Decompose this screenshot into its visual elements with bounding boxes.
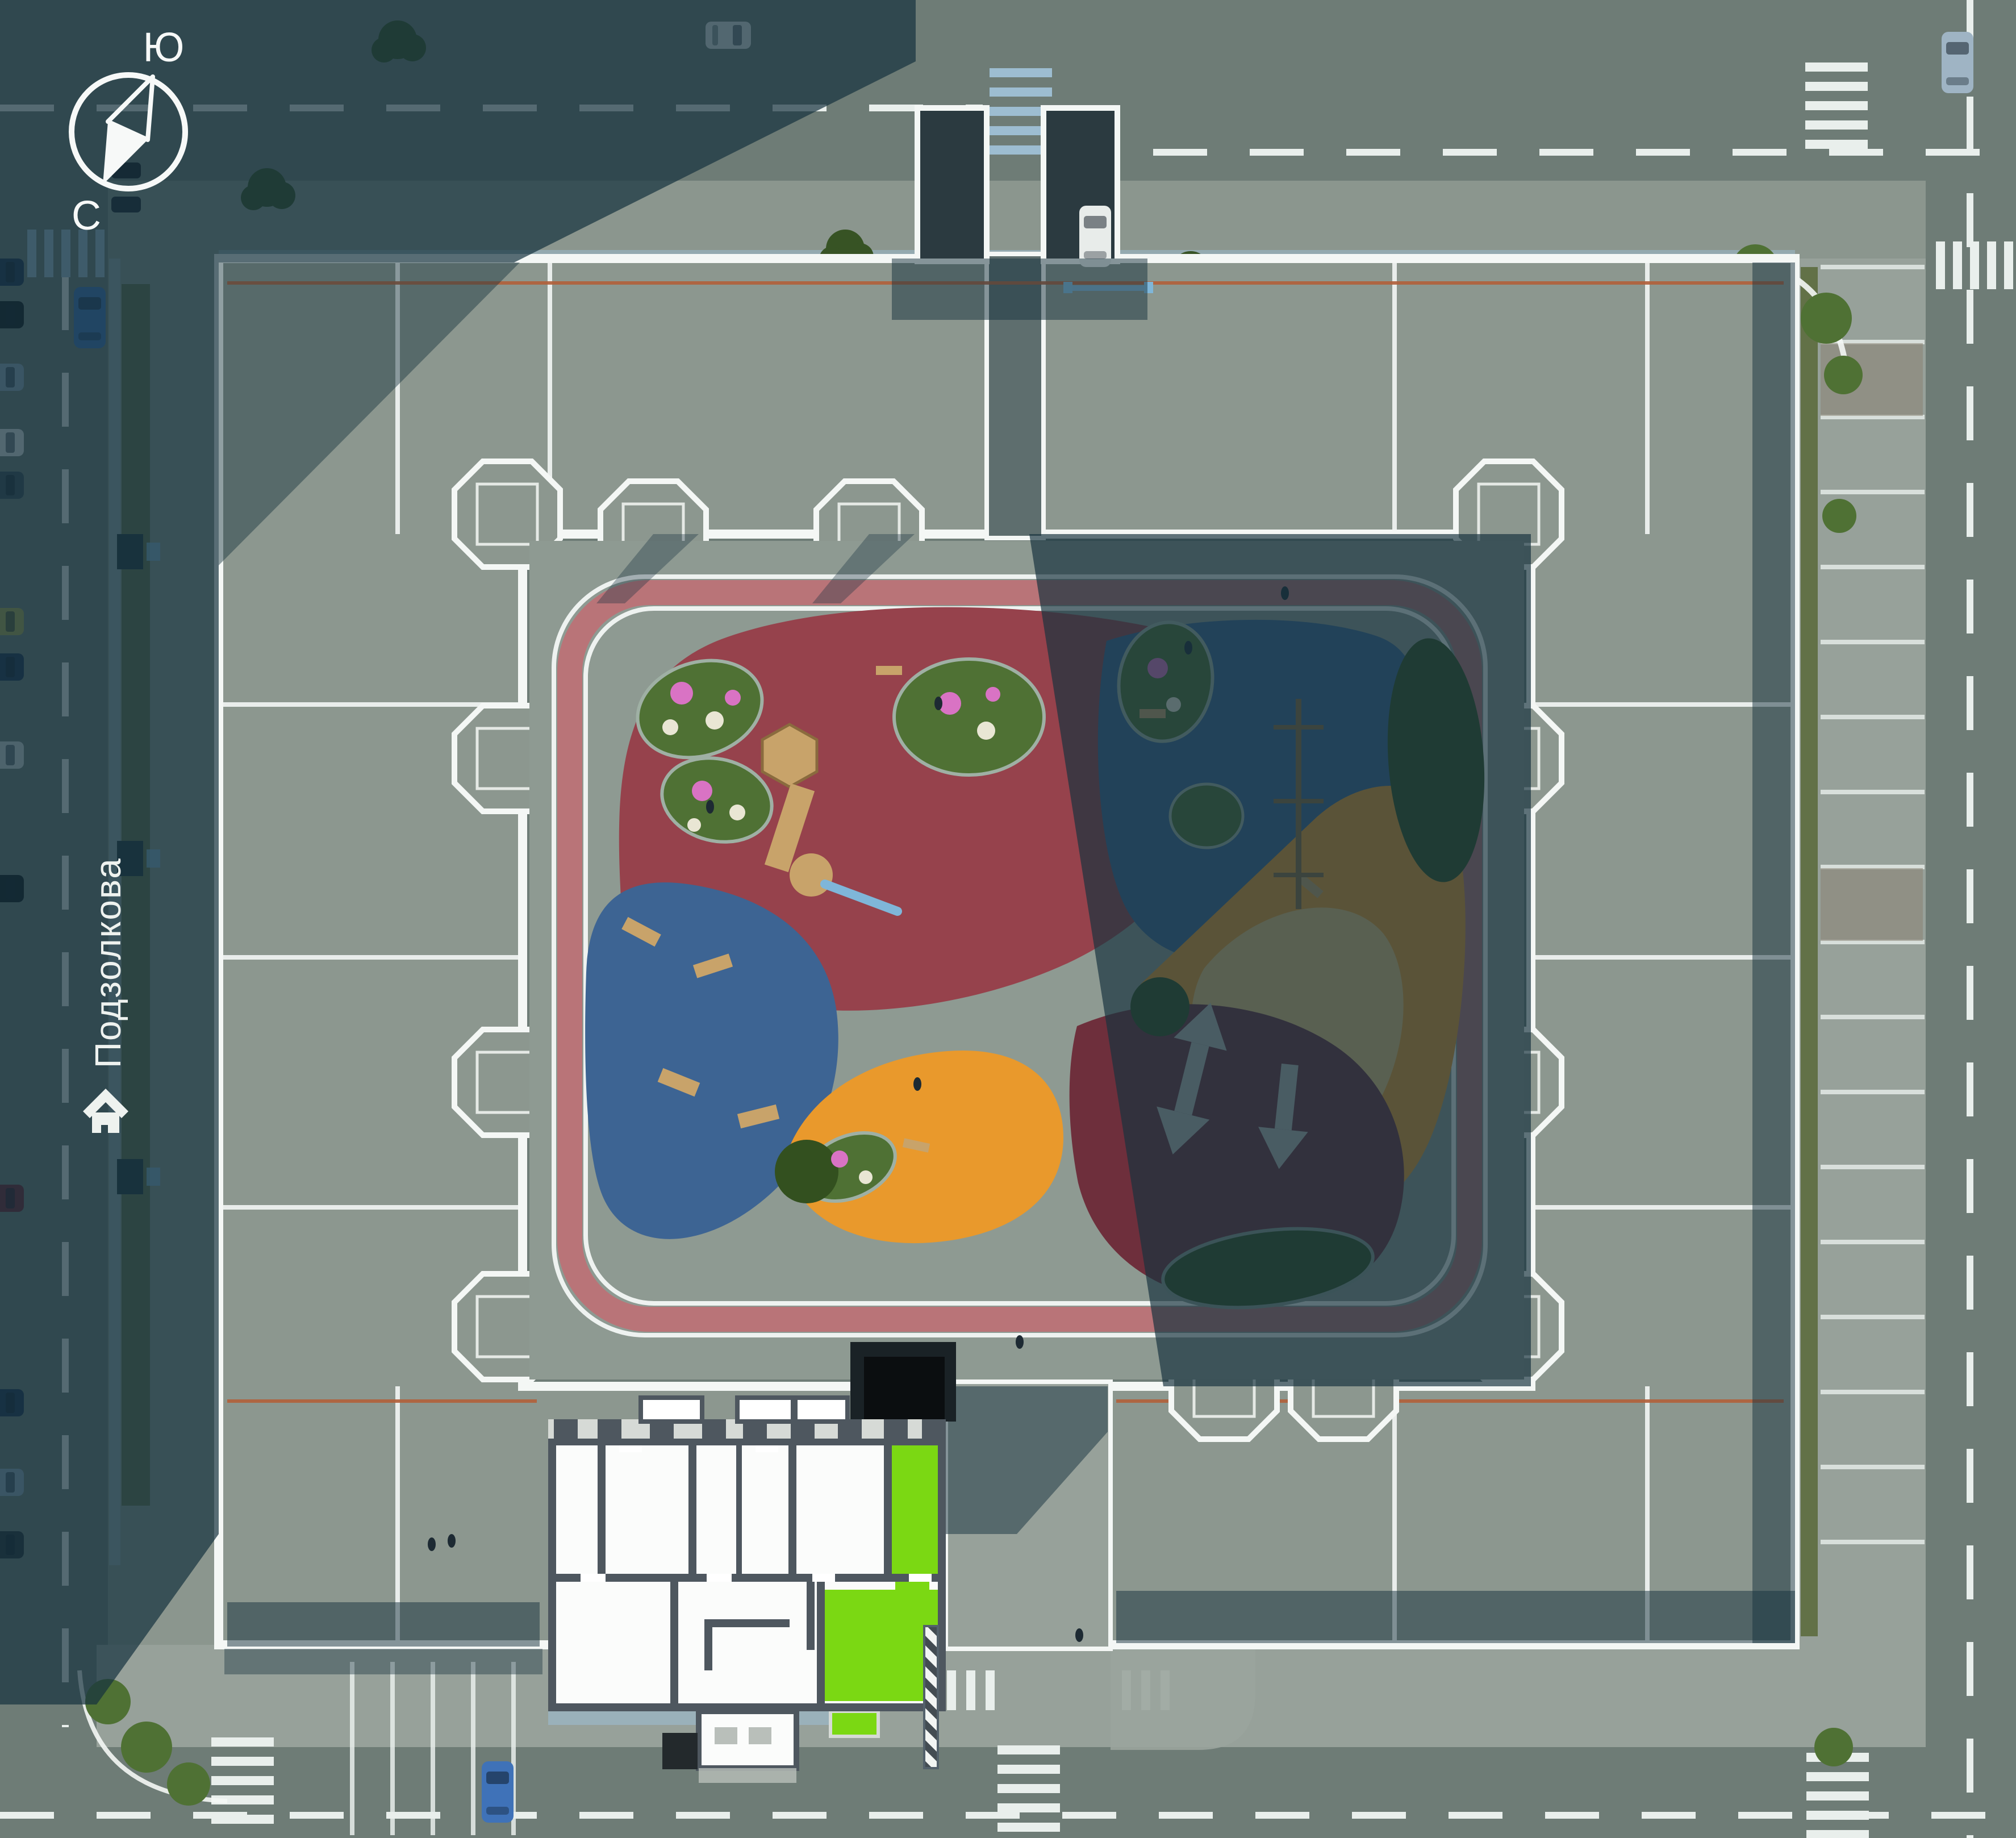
shadow-tower-band: [892, 259, 1147, 320]
hedge-strip-east: [1801, 267, 1818, 1636]
plan-canopy-dark: [662, 1733, 698, 1769]
tower-roof-north-a: [917, 108, 987, 261]
plan-walkway: [699, 1768, 796, 1783]
shadow-east-band: [1752, 262, 1795, 1643]
plan-black-roof: [864, 1357, 945, 1420]
shadow-se-band: [1116, 1591, 1795, 1643]
plan-balconies: [641, 1398, 848, 1422]
plan-stair-mat-1: [715, 1727, 737, 1744]
wood-tower: [762, 724, 817, 787]
shadow-below-sw: [224, 1649, 542, 1674]
compass-south-label: Ю: [143, 25, 185, 70]
street-name: Подзолкова: [87, 857, 128, 1068]
genplan-aerial-view: Подзолкова Ю С: [0, 0, 2016, 1838]
car-bottom-parking: [482, 1761, 514, 1823]
plan-stair-mat-2: [749, 1727, 771, 1744]
car-at-gate: [1079, 206, 1111, 267]
compass-north-label: С: [72, 193, 101, 239]
shadow-sw-band: [227, 1602, 540, 1647]
plan-stair-core: [699, 1711, 796, 1768]
car-right-road: [1942, 32, 1973, 93]
hatched-barrier-strip: [924, 1626, 938, 1768]
parking-slot-tan-2: [1821, 868, 1923, 941]
